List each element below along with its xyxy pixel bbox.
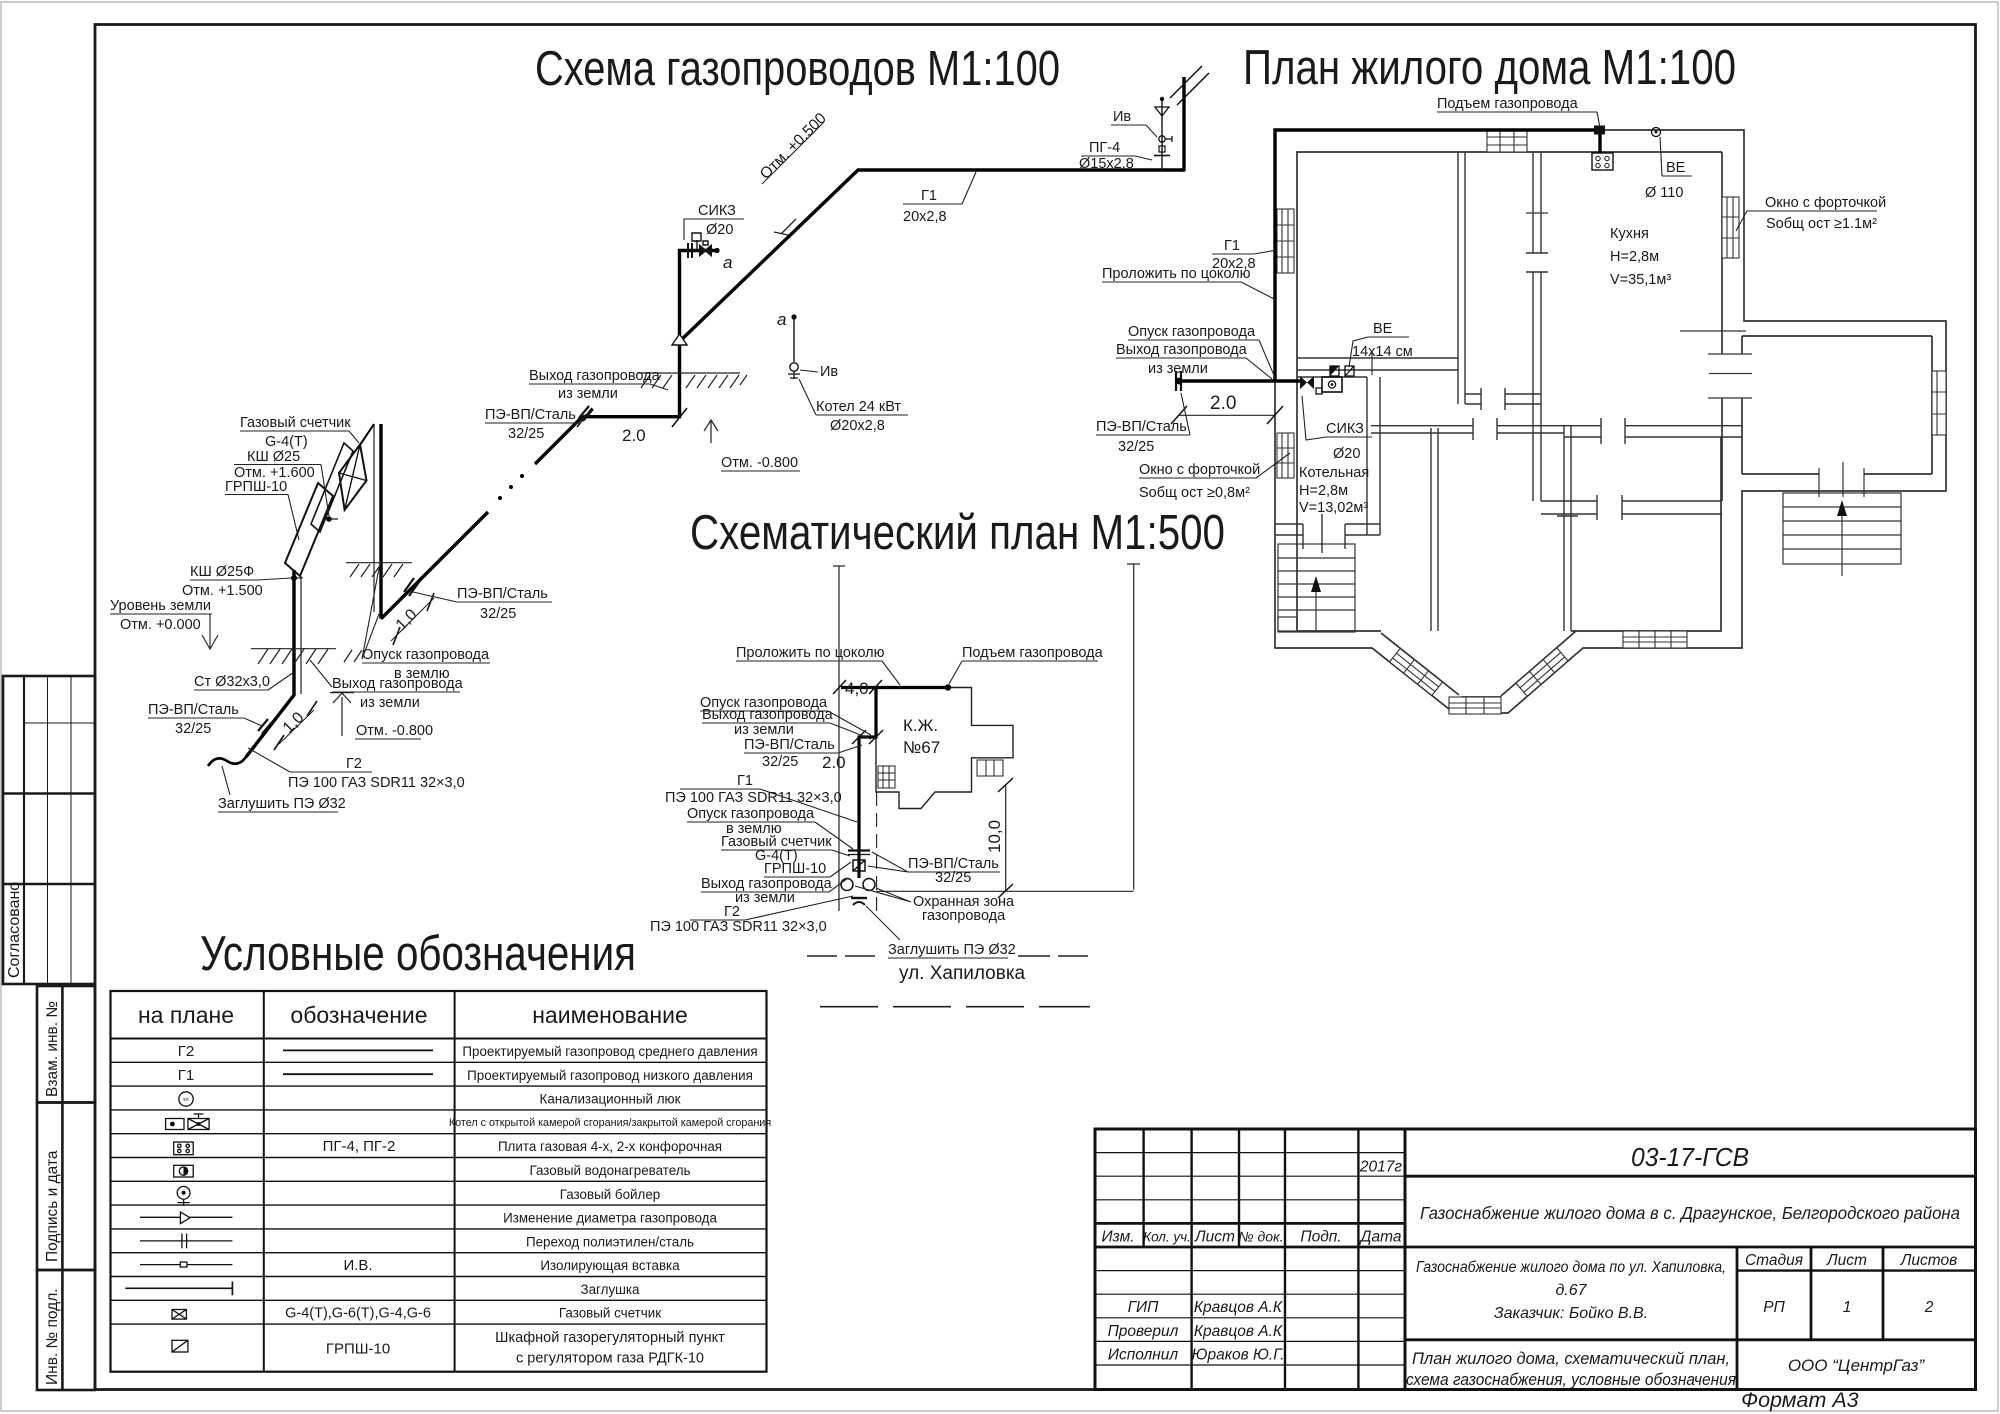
svg-text:кл: кл [183, 1097, 188, 1103]
svg-text:Газоснабжение жилого дома по у: Газоснабжение жилого дома по ул. Хапилов… [1416, 1259, 1726, 1276]
svg-text:Проектируемый газопровод низко: Проектируемый газопровод низкого давлени… [467, 1068, 753, 1083]
svg-text:а: а [723, 253, 732, 272]
svg-text:20х2,8: 20х2,8 [903, 209, 947, 225]
svg-text:Согласовано: Согласовано [6, 882, 23, 978]
svg-text:КШ Ø25: КШ Ø25 [247, 449, 300, 465]
svg-text:2017г: 2017г [1359, 1159, 1402, 1176]
svg-text:№67: №67 [903, 738, 940, 757]
svg-text:Котел с открытой камерой сгора: Котел с открытой камерой сгорания/закрыт… [449, 1117, 772, 1129]
svg-text:Юраков Ю.Г.: Юраков Ю.Г. [1192, 1347, 1285, 1364]
svg-text:Газовый счетчик: Газовый счетчик [559, 1306, 661, 1321]
svg-text:Проложить по цоколю: Проложить по цоколю [736, 645, 885, 661]
svg-text:ПЭ 100 ГАЗ SDR11 32×3,0: ПЭ 100 ГАЗ SDR11 32×3,0 [288, 775, 465, 791]
svg-text:Г1: Г1 [921, 188, 937, 204]
svg-text:Г2: Г2 [724, 904, 740, 920]
svg-text:Ø20х2,8: Ø20х2,8 [830, 418, 885, 434]
svg-text:2: 2 [1924, 1299, 1934, 1316]
svg-text:Условные обозначения: Условные обозначения [200, 927, 636, 981]
svg-text:Инв. № подл.: Инв. № подл. [44, 1288, 61, 1385]
svg-text:10,0: 10,0 [985, 820, 1004, 853]
svg-text:ГРПШ-10: ГРПШ-10 [764, 861, 826, 877]
svg-text:ПЭ-ВП/Сталь: ПЭ-ВП/Сталь [485, 407, 576, 423]
svg-text:32/25: 32/25 [935, 870, 971, 886]
svg-text:Отм. +0.500: Отм. +0.500 [757, 110, 830, 183]
svg-text:Отм. -0.800: Отм. -0.800 [721, 455, 798, 471]
svg-text:Проложить по цоколю: Проложить по цоколю [1102, 266, 1251, 282]
svg-text:Sобщ ост ≥0,8м²: Sобщ ост ≥0,8м² [1139, 485, 1250, 501]
svg-text:Канализационный люк: Канализационный люк [540, 1092, 681, 1107]
svg-text:Подп.: Подп. [1300, 1229, 1341, 1246]
svg-text:Н=2,8м: Н=2,8м [1610, 249, 1659, 265]
svg-text:G-4(Т): G-4(Т) [265, 434, 308, 450]
svg-text:Г2: Г2 [346, 756, 362, 772]
svg-text:G-4(Т),G-6(Т),G-4,G-6: G-4(Т),G-6(Т),G-4,G-6 [285, 1306, 431, 1322]
svg-text:Газовый водонагреватель: Газовый водонагреватель [529, 1163, 690, 1178]
svg-text:Дата: Дата [1359, 1229, 1402, 1246]
svg-text:Опуск газопровода: Опуск газопровода [1128, 324, 1256, 340]
svg-text:№ док.: № док. [1238, 1229, 1283, 1245]
svg-text:2.0: 2.0 [622, 426, 646, 445]
svg-text:Заказчик: Бойко В.В.: Заказчик: Бойко В.В. [1494, 1305, 1648, 1322]
svg-text:Кравцов А.К: Кравцов А.К [1194, 1323, 1283, 1340]
svg-text:д.67: д.67 [1555, 1282, 1587, 1299]
svg-text:План жилого дома М1:100: План жилого дома М1:100 [1243, 41, 1736, 95]
svg-text:Изм.: Изм. [1101, 1229, 1134, 1246]
svg-text:Подпись и дата: Подпись и дата [44, 1150, 61, 1262]
svg-text:ГИП: ГИП [1128, 1299, 1160, 1316]
svg-text:Выход газопровода: Выход газопровода [702, 707, 834, 723]
svg-text:Плита газовая 4-х, 2-х конфоро: Плита газовая 4-х, 2-х конфорочная [498, 1139, 722, 1154]
svg-text:в землю: в землю [394, 666, 450, 682]
svg-text:из земли: из земли [558, 386, 618, 402]
svg-text:Г2: Г2 [178, 1043, 194, 1060]
svg-text:Подъем газопровода: Подъем газопровода [962, 645, 1104, 661]
svg-text:Ив: Ив [820, 364, 838, 380]
svg-text:32/25: 32/25 [480, 606, 516, 622]
svg-text:Исполнил: Исполнил [1108, 1347, 1179, 1364]
svg-text:Схема газопроводов М1:100: Схема газопроводов М1:100 [535, 42, 1060, 96]
svg-text:схема газоснабжения, условные: схема газоснабжения, условные обозначени… [1406, 1371, 1736, 1389]
svg-text:Проверил: Проверил [1108, 1323, 1179, 1340]
svg-text:Изменение диаметра газопровода: Изменение диаметра газопровода [503, 1211, 717, 1226]
svg-text:1,0: 1,0 [280, 709, 308, 737]
svg-text:Окно с форточкой: Окно с форточкой [1139, 462, 1260, 478]
svg-text:из земли: из земли [360, 695, 420, 711]
svg-text:газопровода: газопровода [922, 908, 1006, 924]
svg-text:Взам. инв. №: Взам. инв. № [44, 1001, 61, 1097]
svg-text:а: а [777, 310, 786, 329]
svg-text:И.В.: И.В. [343, 1257, 372, 1274]
svg-text:V=35,1м³: V=35,1м³ [1610, 272, 1671, 288]
svg-text:с регулятором газа РДГК-10: с регулятором газа РДГК-10 [516, 1351, 704, 1367]
svg-text:Схематический план М1:500: Схематический план М1:500 [690, 506, 1225, 560]
svg-text:Заглушить ПЭ Ø32: Заглушить ПЭ Ø32 [888, 942, 1016, 958]
svg-text:1: 1 [1843, 1299, 1852, 1316]
svg-text:2.0: 2.0 [1210, 393, 1236, 414]
svg-text:из земли: из земли [1148, 361, 1208, 377]
svg-text:РП: РП [1763, 1299, 1785, 1316]
svg-text:32/25: 32/25 [175, 721, 211, 737]
svg-text:Газоснабжение жилого дома в с: Газоснабжение жилого дома в с. Драгунско… [1420, 1203, 1960, 1223]
svg-text:Лист: Лист [1826, 1252, 1867, 1269]
svg-text:ГРПШ-10: ГРПШ-10 [326, 1341, 390, 1358]
svg-text:Н=2,8м: Н=2,8м [1299, 483, 1348, 499]
svg-text:32/25: 32/25 [1118, 439, 1154, 455]
svg-text:План жилого дома, схематически: План жилого дома, схематический план, [1412, 1350, 1730, 1368]
svg-text:ПЭ-ВП/Сталь: ПЭ-ВП/Сталь [457, 586, 548, 602]
svg-text:Газовый счетчик: Газовый счетчик [240, 415, 351, 431]
svg-text:Ø15х2,8: Ø15х2,8 [1079, 156, 1134, 172]
svg-text:Ив: Ив [1113, 109, 1131, 125]
svg-text:ПЭ-ВП/Сталь: ПЭ-ВП/Сталь [744, 737, 835, 753]
svg-text:Изолирующая вставка: Изолирующая вставка [540, 1258, 680, 1273]
svg-text:Переход полиэтилен/сталь: Переход полиэтилен/сталь [526, 1234, 694, 1249]
svg-text:ГРПШ-10: ГРПШ-10 [225, 479, 287, 495]
svg-text:ул. Хапиловка: ул. Хапиловка [899, 963, 1026, 984]
svg-text:Стадия: Стадия [1745, 1252, 1803, 1269]
svg-text:Котел 24 кВт: Котел 24 кВт [816, 399, 901, 415]
svg-text:ПЭ 100 ГАЗ SDR11 32×3,0: ПЭ 100 ГАЗ SDR11 32×3,0 [665, 790, 842, 806]
svg-text:Выход газопровода: Выход газопровода [529, 368, 661, 384]
svg-text:Подъем газопровода: Подъем газопровода [1437, 96, 1579, 112]
svg-text:Опуск газопровода: Опуск газопровода [687, 806, 815, 822]
svg-text:1,0: 1,0 [393, 606, 421, 634]
svg-text:Окно с форточкой: Окно с форточкой [1765, 195, 1886, 211]
svg-text:из земли: из земли [734, 722, 794, 738]
svg-text:Шкафной газорегуляторный пункт: Шкафной газорегуляторный пункт [495, 1330, 725, 1346]
svg-text:32/25: 32/25 [508, 426, 544, 442]
svg-text:ООО “ЦентрГаз”: ООО “ЦентрГаз” [1788, 1356, 1926, 1375]
svg-text:ПЭ 100 ГАЗ SDR11 32×3,0: ПЭ 100 ГАЗ SDR11 32×3,0 [650, 919, 827, 935]
svg-text:из земли: из земли [735, 890, 795, 906]
svg-text:32/25: 32/25 [762, 754, 798, 770]
svg-text:Формат А3: Формат А3 [1741, 1388, 1859, 1412]
svg-text:Ø20: Ø20 [706, 222, 733, 238]
svg-text:ПЭ-ВП/Сталь: ПЭ-ВП/Сталь [1096, 419, 1187, 435]
svg-text:Выход газопровода: Выход газопровода [1116, 342, 1248, 358]
svg-text:Г1: Г1 [178, 1067, 194, 1084]
svg-text:Ø 110: Ø 110 [1645, 185, 1683, 201]
svg-text:Отм. +1.500: Отм. +1.500 [182, 583, 263, 599]
svg-text:Опуск газопровода: Опуск газопровода [362, 647, 490, 663]
svg-text:ВЕ: ВЕ [1666, 160, 1686, 176]
svg-text:К.Ж.: К.Ж. [903, 716, 938, 735]
svg-text:Котельная: Котельная [1299, 465, 1369, 481]
svg-text:Газовый бойлер: Газовый бойлер [560, 1187, 660, 1202]
svg-text:03-17-ГСВ: 03-17-ГСВ [1631, 1142, 1749, 1172]
svg-text:2.0: 2.0 [822, 753, 846, 772]
svg-text:Заглушить ПЭ Ø32: Заглушить ПЭ Ø32 [218, 796, 346, 812]
svg-text:ВЕ: ВЕ [1373, 321, 1393, 337]
svg-text:14х14 см: 14х14 см [1352, 344, 1413, 360]
svg-text:4,0: 4,0 [845, 679, 869, 698]
svg-text:наименование: наименование [532, 1002, 688, 1028]
svg-text:Заглушка: Заглушка [581, 1282, 641, 1297]
svg-text:СИКЗ: СИКЗ [1326, 421, 1364, 437]
svg-text:Отм. +0.000: Отм. +0.000 [120, 617, 201, 633]
svg-text:СИКЗ: СИКЗ [698, 203, 736, 219]
svg-text:Sобщ ост ≥1.1м²: Sобщ ост ≥1.1м² [1766, 216, 1877, 232]
svg-text:Листов: Листов [1900, 1252, 1957, 1269]
svg-text:Кравцов А.К: Кравцов А.К [1194, 1299, 1283, 1316]
svg-text:ПГ-4: ПГ-4 [1089, 140, 1120, 156]
svg-text:КШ Ø25Ф: КШ Ø25Ф [190, 564, 254, 580]
svg-text:Ø20: Ø20 [1333, 446, 1360, 462]
svg-text:Кухня: Кухня [1610, 226, 1649, 242]
svg-text:Отм. -0.800: Отм. -0.800 [356, 723, 433, 739]
svg-text:V=13,02м³: V=13,02м³ [1299, 500, 1368, 516]
svg-text:ПГ-4, ПГ-2: ПГ-4, ПГ-2 [323, 1138, 396, 1155]
svg-text:Г1: Г1 [1224, 238, 1240, 254]
svg-text:на плане: на плане [138, 1002, 234, 1028]
svg-text:Лист: Лист [1194, 1229, 1235, 1246]
svg-text:Проектируемый газопровод средн: Проектируемый газопровод среднего давлен… [462, 1044, 757, 1059]
svg-text:обозначение: обозначение [290, 1002, 427, 1028]
svg-text:Ст Ø32х3,0: Ст Ø32х3,0 [194, 674, 270, 690]
svg-text:Уровень земли: Уровень земли [110, 598, 211, 614]
svg-text:Г1: Г1 [737, 773, 753, 789]
svg-text:ПЭ-ВП/Сталь: ПЭ-ВП/Сталь [148, 702, 239, 718]
svg-text:Кол. уч.: Кол. уч. [1143, 1230, 1191, 1245]
